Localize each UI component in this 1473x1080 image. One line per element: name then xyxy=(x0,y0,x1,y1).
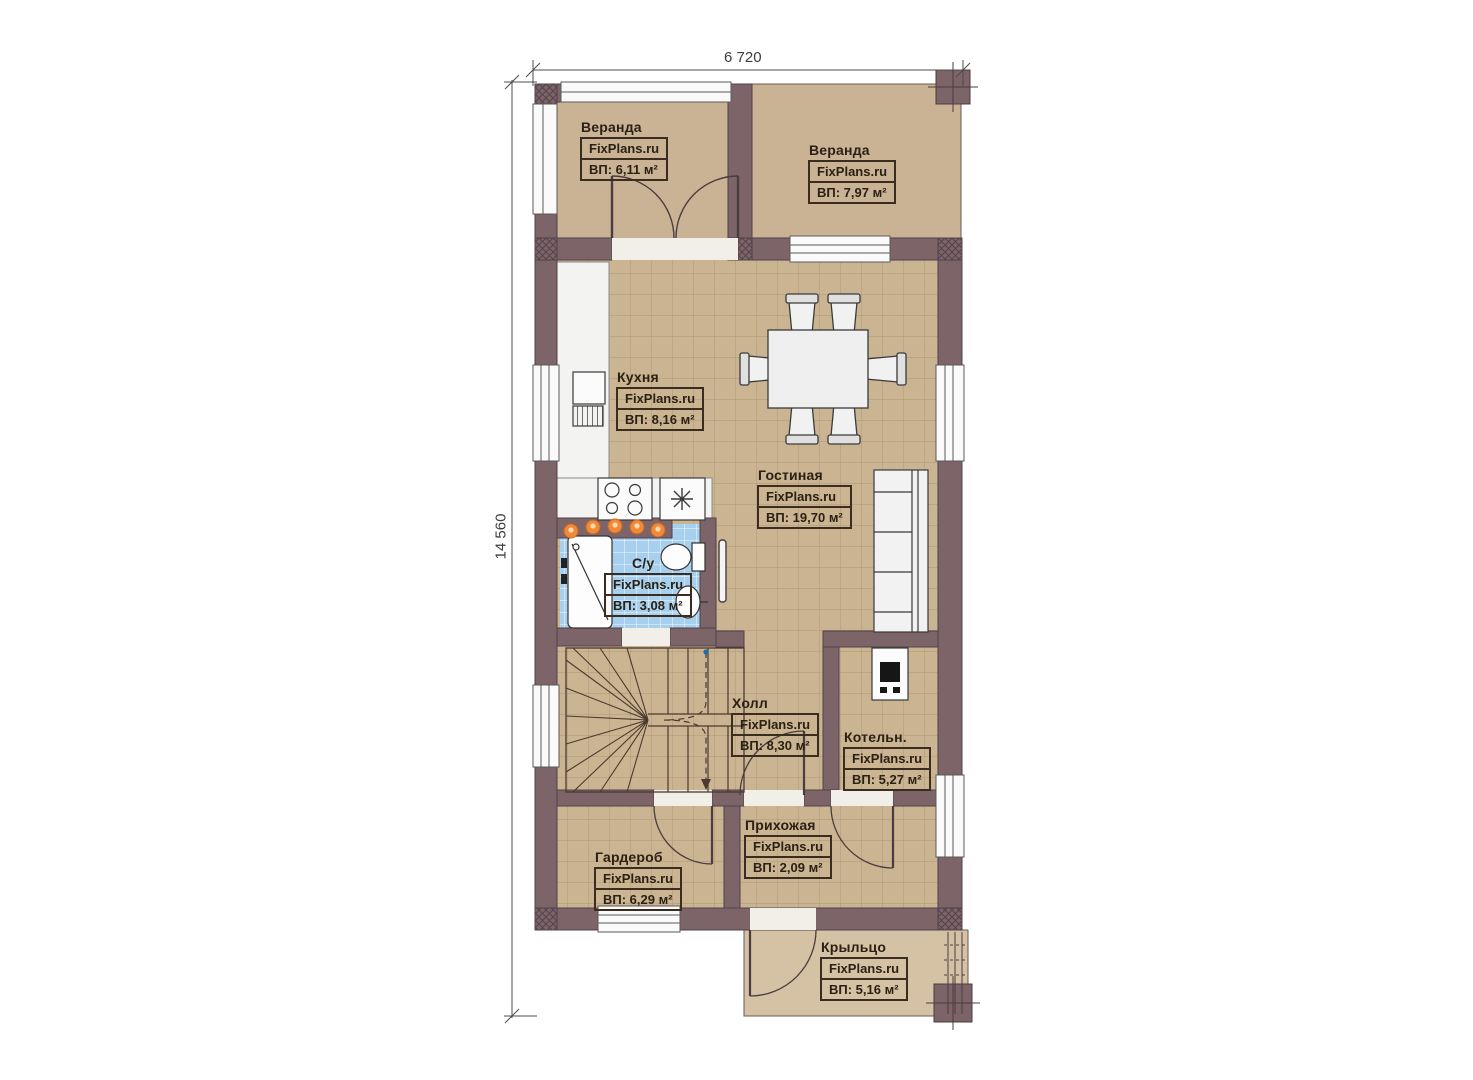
room-label-living: Гостиная FixPlans.ru ВП: 19,70 м² xyxy=(757,468,852,529)
room-name: Веранда xyxy=(809,143,896,157)
room-name: Гостиная xyxy=(758,468,852,482)
window-left-kitchen xyxy=(533,365,559,461)
room-brand: FixPlans.ru xyxy=(810,162,894,181)
floorplan-page: 6 720 14 560 Веранда FixPlans.ru ВП: 6,1… xyxy=(0,0,1473,1080)
window-right-living xyxy=(936,365,964,461)
sink-symbol xyxy=(671,488,693,510)
room-info-box: FixPlans.ru ВП: 5,27 м² xyxy=(843,747,931,791)
room-name: Кухня xyxy=(617,370,704,384)
room-label-boiler: Котельн. FixPlans.ru ВП: 5,27 м² xyxy=(843,730,931,791)
room-area: ВП: 2,09 м² xyxy=(746,856,830,877)
chair xyxy=(866,353,906,385)
bathroom-door-leaf xyxy=(719,540,726,602)
room-info-box: FixPlans.ru ВП: 2,09 м² xyxy=(744,835,832,879)
room-name: Прихожая xyxy=(745,818,832,832)
room-info-box: FixPlans.ru ВП: 6,29 м² xyxy=(594,867,682,911)
room-area: ВП: 5,16 м² xyxy=(822,978,906,999)
window-right-entry xyxy=(936,775,964,857)
chair xyxy=(828,404,860,444)
stove xyxy=(598,478,652,520)
dimension-height-label: 14 560 xyxy=(492,514,509,560)
room-info-box: FixPlans.ru ВП: 5,16 м² xyxy=(820,957,908,1001)
room-brand: FixPlans.ru xyxy=(746,837,830,856)
sofa xyxy=(874,470,928,632)
room-area: ВП: 6,29 м² xyxy=(596,888,680,909)
room-brand: FixPlans.ru xyxy=(596,869,680,888)
room-name: Веранда xyxy=(581,120,668,134)
room-area: ВП: 8,30 м² xyxy=(733,734,817,755)
room-label-bathroom: С/у FixPlans.ru ВП: 3,08 м² xyxy=(604,556,692,617)
room-label-wardrobe: Гардероб FixPlans.ru ВП: 6,29 м² xyxy=(594,850,682,911)
room-info-box: FixPlans.ru ВП: 19,70 м² xyxy=(757,485,852,529)
room-label-entry: Прихожая FixPlans.ru ВП: 2,09 м² xyxy=(744,818,832,879)
room-brand: FixPlans.ru xyxy=(618,389,702,408)
room-brand: FixPlans.ru xyxy=(606,575,690,594)
drainer xyxy=(573,406,603,426)
room-area: ВП: 3,08 м² xyxy=(606,594,690,615)
dimension-width-label: 6 720 xyxy=(724,49,762,66)
room-info-box: FixPlans.ru ВП: 3,08 м² xyxy=(604,573,692,617)
room-brand: FixPlans.ru xyxy=(733,715,817,734)
room-brand: FixPlans.ru xyxy=(845,749,929,768)
floorplan-drawing xyxy=(0,0,1473,1080)
kitchen-sink-unit xyxy=(573,372,605,404)
chair xyxy=(786,294,818,334)
room-name: Котельн. xyxy=(844,730,931,744)
room-brand: FixPlans.ru xyxy=(582,139,666,158)
boiler-unit xyxy=(872,648,908,700)
room-label-kitchen: Кухня FixPlans.ru ВП: 8,16 м² xyxy=(616,370,704,431)
veranda-glazing-top xyxy=(561,82,731,102)
window-top-living xyxy=(790,236,890,262)
room-info-box: FixPlans.ru ВП: 7,97 м² xyxy=(808,160,896,204)
window-left-hall xyxy=(533,685,559,767)
room-info-box: FixPlans.ru ВП: 6,11 м² xyxy=(580,137,668,181)
room-area: ВП: 5,27 м² xyxy=(845,768,929,789)
room-brand: FixPlans.ru xyxy=(822,959,906,978)
dining-table xyxy=(768,330,868,408)
room-label-hall: Холл FixPlans.ru ВП: 8,30 м² xyxy=(731,696,819,757)
veranda-glazing-left xyxy=(533,104,557,214)
room-label-porch: Крыльцо FixPlans.ru ВП: 5,16 м² xyxy=(820,940,908,1001)
room-area: ВП: 7,97 м² xyxy=(810,181,894,202)
room-name: Гардероб xyxy=(595,850,682,864)
room-brand: FixPlans.ru xyxy=(759,487,850,506)
room-name: С/у xyxy=(632,556,692,570)
room-info-box: FixPlans.ru ВП: 8,30 м² xyxy=(731,713,819,757)
room-area: ВП: 8,16 м² xyxy=(618,408,702,429)
room-label-veranda-left: Веранда FixPlans.ru ВП: 6,11 м² xyxy=(580,120,668,181)
room-area: ВП: 6,11 м² xyxy=(582,158,666,179)
room-area: ВП: 19,70 м² xyxy=(759,506,850,527)
room-label-veranda-right: Веранда FixPlans.ru ВП: 7,97 м² xyxy=(808,143,896,204)
room-info-box: FixPlans.ru ВП: 8,16 м² xyxy=(616,387,704,431)
chair xyxy=(828,294,860,334)
chair xyxy=(786,404,818,444)
room-name: Крыльцо xyxy=(821,940,908,954)
room-name: Холл xyxy=(732,696,819,710)
